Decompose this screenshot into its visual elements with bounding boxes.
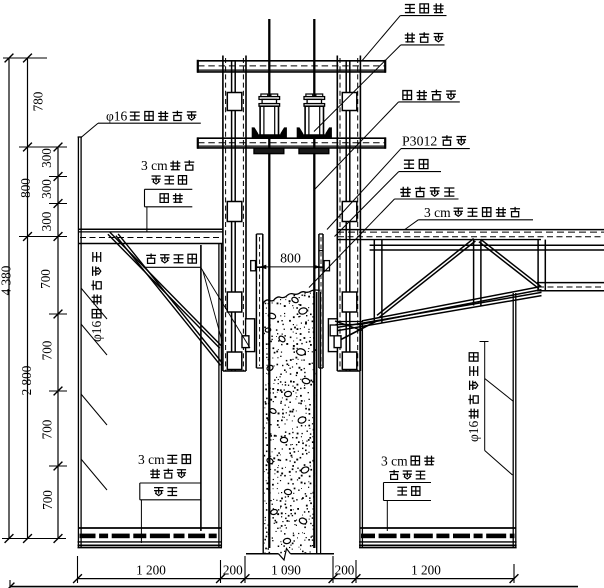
svg-text:φ16: φ16 xyxy=(466,420,481,442)
svg-text:200: 200 xyxy=(223,563,243,578)
svg-text:3 cm: 3 cm xyxy=(381,453,408,468)
svg-text:3 cm: 3 cm xyxy=(138,452,165,467)
svg-text:4 380: 4 380 xyxy=(0,265,14,295)
svg-text:3 cm: 3 cm xyxy=(141,158,168,173)
svg-text:800: 800 xyxy=(280,250,301,265)
svg-text:300: 300 xyxy=(39,179,54,199)
svg-text:1 200: 1 200 xyxy=(411,563,441,578)
svg-text:P3012: P3012 xyxy=(402,133,437,148)
svg-text:φ16: φ16 xyxy=(89,320,104,342)
svg-text:700: 700 xyxy=(40,340,55,360)
svg-text:1 090: 1 090 xyxy=(271,563,301,578)
svg-text:700: 700 xyxy=(40,419,55,439)
svg-text:700: 700 xyxy=(38,269,53,289)
svg-text:1 200: 1 200 xyxy=(136,563,166,578)
svg-text:2 800: 2 800 xyxy=(19,365,34,395)
svg-text:200: 200 xyxy=(335,563,355,578)
svg-text:3 cm: 3 cm xyxy=(424,205,451,220)
svg-text:φ16: φ16 xyxy=(106,109,128,124)
svg-text:700: 700 xyxy=(40,490,55,510)
svg-text:300: 300 xyxy=(39,148,54,168)
svg-text:800: 800 xyxy=(18,178,33,198)
svg-text:780: 780 xyxy=(31,91,46,111)
svg-text:300: 300 xyxy=(39,211,54,231)
